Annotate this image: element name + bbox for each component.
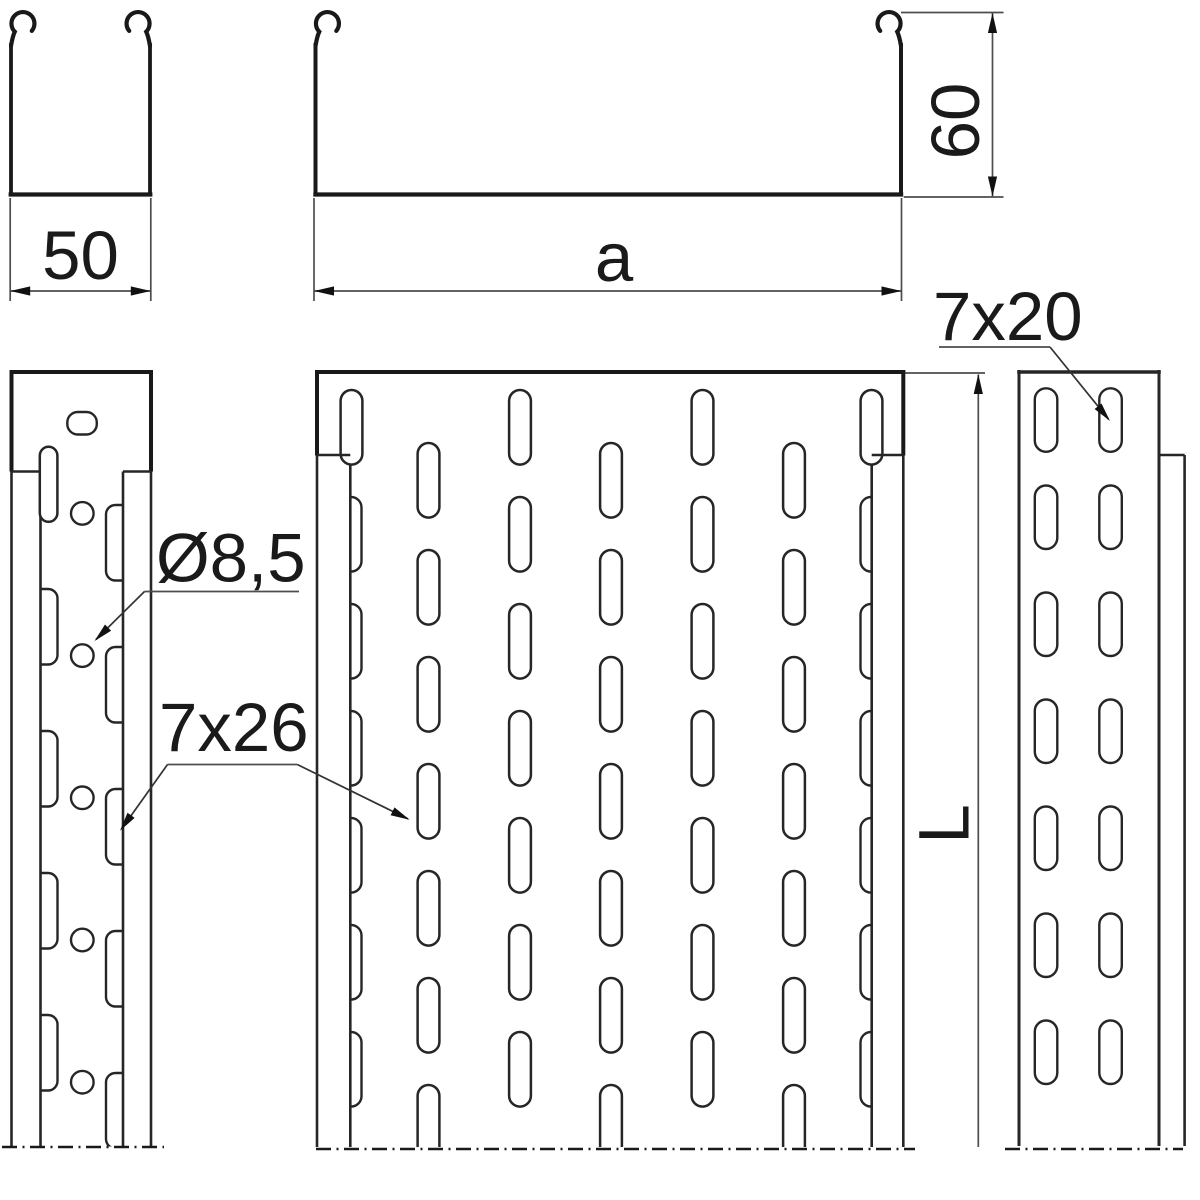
svg-text:Ø8,5: Ø8,5 (156, 520, 306, 597)
svg-text:50: 50 (42, 217, 119, 294)
svg-text:60: 60 (917, 83, 994, 160)
svg-text:L: L (905, 804, 985, 844)
svg-text:a: a (595, 219, 634, 296)
svg-text:7x20: 7x20 (933, 278, 1083, 355)
svg-text:7x26: 7x26 (159, 689, 309, 766)
